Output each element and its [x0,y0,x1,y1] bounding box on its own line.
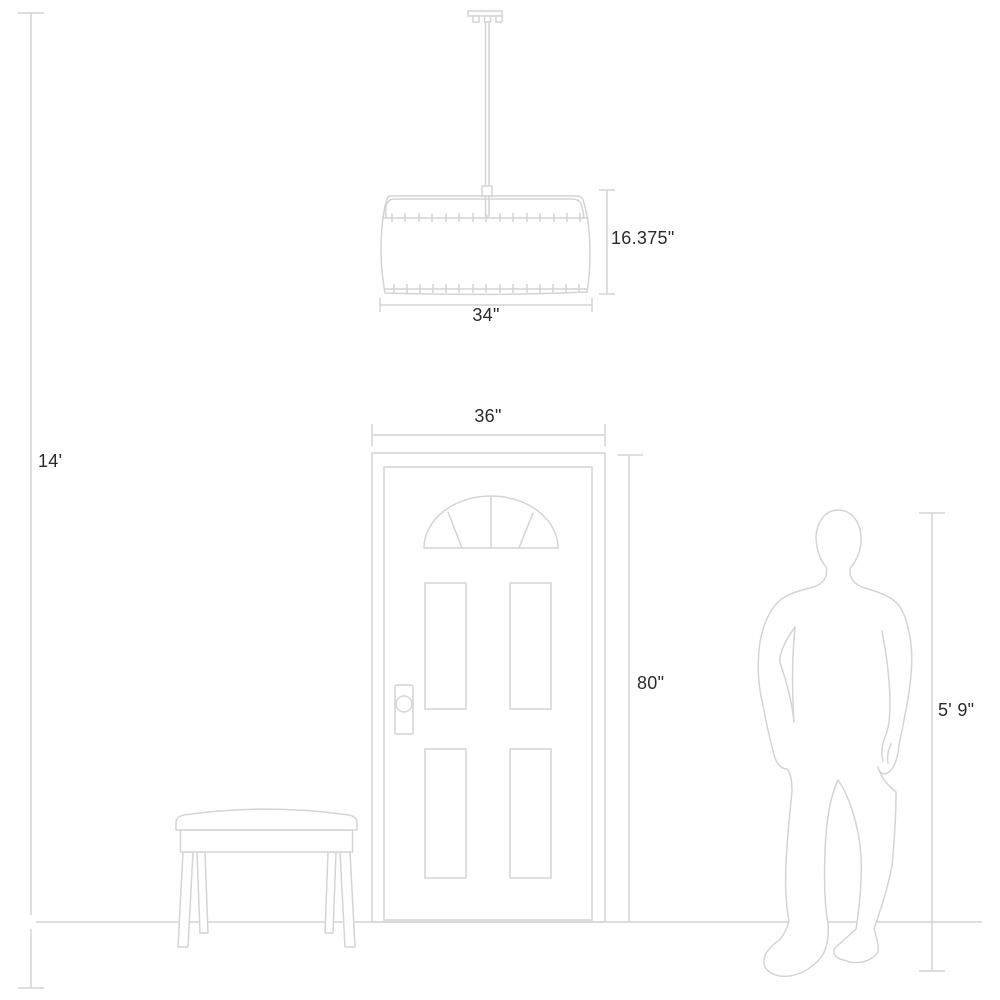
pendant-light-drawing [381,11,590,294]
person-height-dimension-line [919,513,945,971]
line-art [0,0,1000,1000]
door-width-label: 36" [462,407,514,426]
dimension-diagram: 14' 16.375" 34" 36" 80" 5' 9" [0,0,1000,1000]
door-width-dimension-line [372,424,605,446]
door-height-label: 80" [637,674,664,693]
ceiling-height-label: 14' [38,452,62,471]
person-height-label: 5' 9" [938,701,974,720]
bench-drawing [176,809,357,947]
door-drawing [372,453,605,922]
fixture-height-label: 16.375" [611,229,675,248]
ceiling-height-dimension-line [18,13,44,988]
person-silhouette [758,510,911,976]
fixture-width-label: 34" [460,306,512,325]
